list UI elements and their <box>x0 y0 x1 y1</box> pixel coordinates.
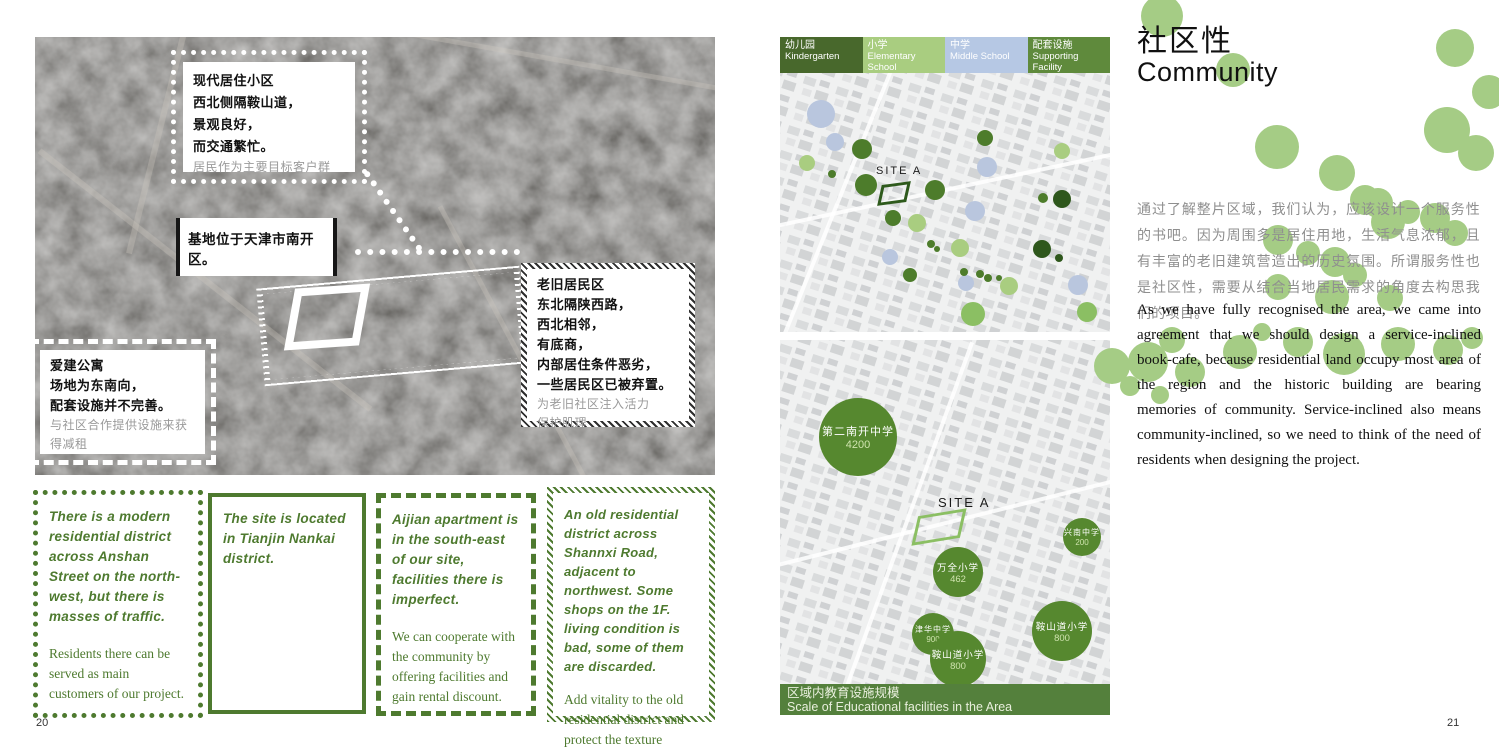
facility-dot-middle <box>826 133 844 151</box>
legend-label-en: Elementary School <box>868 52 941 73</box>
column-highlight: The site is located in Tianjin Nankai di… <box>223 509 351 569</box>
annotation-line-bold: 一些居民区已被弃置。 <box>537 375 679 395</box>
facility-dot-elementary <box>908 214 926 232</box>
column-body: Add vitality to the old residential dist… <box>564 690 698 750</box>
portfolio-spread: 现代居住小区西北侧隔鞍山道，景观良好，而交通繁忙。居民作为主要目标客户群 基地位… <box>0 0 1499 750</box>
decorative-circle <box>1255 125 1299 169</box>
page-number-right: 21 <box>1447 717 1459 729</box>
satellite-map: 现代居住小区西北侧隔鞍山道，景观良好，而交通繁忙。居民作为主要目标客户群 基地位… <box>35 37 715 475</box>
school-name: 万全小学 <box>937 560 979 574</box>
school-scale-value: 200 <box>1075 538 1088 547</box>
school-scale-value: 800 <box>950 661 966 672</box>
column-highlight: Aijian apartment is in the south-east of… <box>392 510 520 610</box>
facility-dot-kindergarten <box>934 246 940 252</box>
facility-dot-kindergarten <box>828 170 836 178</box>
column-body: We can cooperate with the community by o… <box>392 627 520 707</box>
column-highlight: An old residential district across Shann… <box>564 505 698 676</box>
decorative-circle <box>1319 155 1355 191</box>
decorative-circle <box>1436 29 1474 67</box>
site-outline <box>284 283 370 350</box>
school-name: 鞍山道小学 <box>932 647 985 661</box>
facility-dot-kindergarten <box>903 268 917 282</box>
page-number-left: 20 <box>36 717 48 729</box>
annotation-line-bold: 现代居住小区 <box>193 70 345 92</box>
education-scale-map: SITE A 第二南开中学4200万全小学462兴南中学200津华中学900鞍山… <box>780 340 1110 715</box>
facility-dot-kindergarten <box>855 174 877 196</box>
annotation-line-bold: 西北相邻， <box>537 315 679 335</box>
map-caption: 区域内教育设施规模 Scale of Educational facilitie… <box>780 684 1110 715</box>
school-bubble: 鞍山道小学800 <box>930 631 986 687</box>
school-name: 鞍山道小学 <box>1036 619 1089 633</box>
legend-item-kindergarten: 幼儿园Kindergarten <box>780 37 863 73</box>
facility-dot-kindergarten <box>977 130 993 146</box>
legend-item-supporting-facility: 配套设施Supporting Facility <box>1028 37 1111 73</box>
annotation-line-bold: 基地位于天津市南开区。 <box>188 230 325 270</box>
column-modern-district: There is a modern residential district a… <box>33 490 203 718</box>
annotation-line-gray: 与社区合作提供设施来获 <box>50 416 195 435</box>
facility-dot-elementary <box>799 155 815 171</box>
legend-label-en: Supporting Facility <box>1033 52 1106 73</box>
page-title-zh: 社区性 <box>1137 26 1278 58</box>
caption-en: Scale of Educational facilities in the A… <box>787 700 1103 714</box>
annotation-line-bold: 而交通繁忙。 <box>193 136 345 158</box>
annotation-line-gray: 居民作为主要目标客户群 <box>193 158 345 177</box>
legend-item-middle-school: 中学Middle School <box>945 37 1028 73</box>
column-body: Residents there can be served as main cu… <box>49 644 187 704</box>
school-name: 第二南开中学 <box>822 423 894 439</box>
caption-zh: 区域内教育设施规模 <box>787 686 1103 700</box>
school-bubble: 兴南中学200 <box>1063 518 1101 556</box>
annotation-aijian-apartment: 爱建公寓场地为东南向，配套设施并不完善。与社区合作提供设施来获得减租 <box>40 350 205 454</box>
facility-dot-middle <box>977 157 997 177</box>
facility-dot-supporting_dark <box>1033 240 1051 258</box>
facility-distribution-map: 幼儿园Kindergarten小学Elementary School中学Midd… <box>780 37 1110 332</box>
annotation-line-bold: 西北侧隔鞍山道， <box>193 92 345 114</box>
facility-dot-elementary <box>1054 143 1070 159</box>
annotation-line-bold: 内部居住条件恶劣， <box>537 355 679 375</box>
legend-label-en: Middle School <box>950 52 1023 63</box>
facility-dot-elementary <box>1000 277 1018 295</box>
facility-dot-kindergarten <box>852 139 872 159</box>
decorative-circle <box>1458 135 1494 171</box>
facility-dot-middle <box>958 275 974 291</box>
column-aijian-apartment: Aijian apartment is in the south-east of… <box>376 493 536 716</box>
facility-dot-middle <box>807 100 835 128</box>
facility-dot-supporting <box>961 302 985 326</box>
annotation-line-gray: 得减租 <box>50 435 195 454</box>
annotation-line-bold: 场地为东南向， <box>50 376 195 396</box>
school-scale-value: 462 <box>950 574 966 585</box>
annotation-line-gray: 为老旧社区注入活力 <box>537 395 679 414</box>
facility-dot-kindergarten <box>976 270 984 278</box>
facility-dot-supporting <box>1077 302 1097 322</box>
paragraph-english: As we have fully recognised the area, we… <box>1137 298 1481 473</box>
column-highlight: There is a modern residential district a… <box>49 507 187 627</box>
facility-dot-middle <box>965 201 985 221</box>
facility-dot-middle <box>1068 275 1088 295</box>
annotation-line-bold: 配套设施并不完善。 <box>50 396 195 416</box>
annotation-line-bold: 爱建公寓 <box>50 356 195 376</box>
facility-dot-middle <box>882 249 898 265</box>
decorative-circle <box>1472 75 1499 109</box>
column-old-district: An old residential district across Shann… <box>547 487 715 722</box>
annotation-line-bold: 景观良好， <box>193 114 345 136</box>
facility-dot-elementary <box>951 239 969 257</box>
facility-dot-kindergarten <box>984 274 992 282</box>
school-bubble: 万全小学462 <box>933 547 983 597</box>
annotation-old-district: 老旧居民区东北隔陕西路，西北相邻，有底商，内部居住条件恶劣，一些居民区已被弃置。… <box>521 263 695 427</box>
site-a-label-top: SITE A <box>876 165 922 177</box>
facility-dot-kindergarten <box>1038 193 1048 203</box>
facility-legend: 幼儿园Kindergarten小学Elementary School中学Midd… <box>780 37 1110 73</box>
annotation-modern-district: 现代居住小区西北侧隔鞍山道，景观良好，而交通繁忙。居民作为主要目标客户群 <box>183 62 355 172</box>
facility-dot-kindergarten <box>925 180 945 200</box>
annotation-line-gray: 保护肌理 <box>537 414 679 433</box>
legend-label-en: Kindergarten <box>785 52 858 63</box>
decorative-circle <box>1424 107 1470 153</box>
school-bubble: 鞍山道小学800 <box>1032 601 1092 661</box>
facility-dot-supporting_dark <box>1055 254 1063 262</box>
dotted-connector-horizontal <box>355 249 520 255</box>
school-name: 兴南中学 <box>1064 527 1100 538</box>
page-title-en: Community <box>1137 58 1278 86</box>
annotation-site-location: 基地位于天津市南开区。 <box>176 218 337 276</box>
school-bubble: 第二南开中学4200 <box>819 398 897 476</box>
annotation-line-bold: 东北隔陕西路， <box>537 295 679 315</box>
annotation-line-bold: 有底商， <box>537 335 679 355</box>
facility-dot-kindergarten <box>885 210 901 226</box>
school-scale-value: 800 <box>1054 633 1070 644</box>
legend-item-elementary-school: 小学Elementary School <box>863 37 946 73</box>
page-title: 社区性 Community <box>1137 26 1278 86</box>
facility-dot-supporting_dark <box>1053 190 1071 208</box>
annotation-line-bold: 老旧居民区 <box>537 275 679 295</box>
facility-dot-kindergarten <box>960 268 968 276</box>
column-site-location: The site is located in Tianjin Nankai di… <box>208 493 366 714</box>
school-scale-value: 4200 <box>846 439 870 451</box>
